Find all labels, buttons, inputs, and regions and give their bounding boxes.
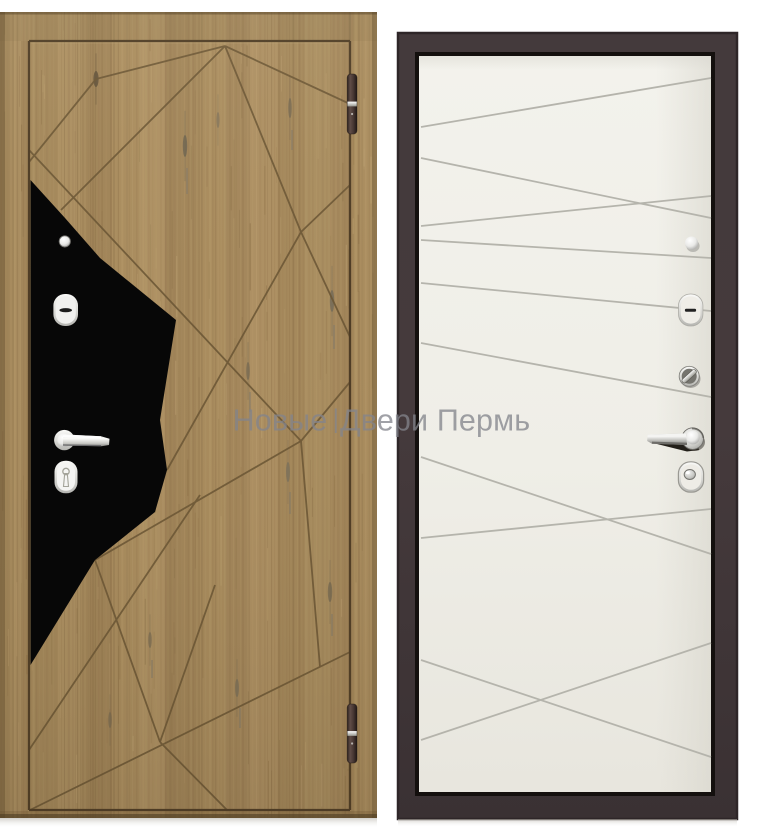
svg-text:Двери Пермь: Двери Пермь: [340, 404, 530, 438]
svg-text:Новые: Новые: [233, 404, 328, 438]
